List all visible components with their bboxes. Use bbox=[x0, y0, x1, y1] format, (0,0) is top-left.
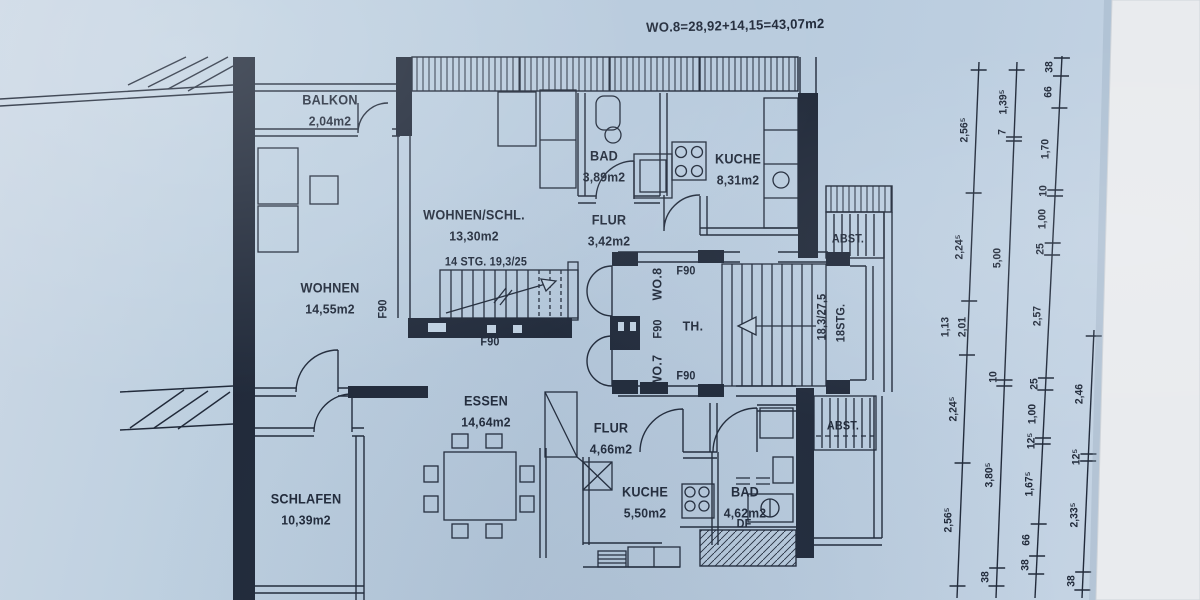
dimension-label: 38 bbox=[1045, 61, 1056, 73]
annotation-label: ABST. bbox=[832, 234, 864, 246]
dimension-label: 25 bbox=[1036, 243, 1047, 255]
room-label-area: 3,89m2 bbox=[583, 171, 626, 184]
room-label-name: FLUR bbox=[592, 213, 627, 227]
annotation-label: F90 bbox=[653, 319, 665, 338]
dimension-label: 2,33⁵ bbox=[1069, 503, 1080, 528]
dimension-label: 38 bbox=[980, 571, 991, 583]
room-label-area: 4,66m2 bbox=[590, 443, 633, 456]
dimension-label: 2,57 bbox=[1033, 306, 1044, 326]
dimension-label: 66 bbox=[1044, 86, 1055, 98]
dimension-label: 2,24⁵ bbox=[948, 397, 959, 422]
room-label-area: 2,04m2 bbox=[309, 115, 352, 128]
room-label-name: SCHLAFEN bbox=[271, 492, 342, 506]
annotation-label: 18,3/27,5 bbox=[817, 294, 829, 341]
dimension-label: 25 bbox=[1029, 378, 1040, 390]
room-label-name: BAD bbox=[590, 149, 618, 163]
room-label-area: 3,42m2 bbox=[588, 235, 631, 248]
dimension-label: 2,01 bbox=[958, 317, 969, 337]
dimension-label: 5,00 bbox=[993, 248, 1004, 268]
annotation-label: TH. bbox=[683, 320, 704, 333]
annotation-label: 18STG. bbox=[836, 304, 848, 342]
room-label-area: 10,39m2 bbox=[281, 514, 331, 527]
dimension-label: 2,46 bbox=[1075, 384, 1086, 404]
dimension-label: 10 bbox=[1039, 185, 1050, 197]
dimension-label: 7 bbox=[998, 129, 1009, 135]
room-label-name: BALKON bbox=[302, 93, 357, 107]
room-label-name: KUCHE bbox=[715, 152, 761, 166]
room-label-area: 5,50m2 bbox=[624, 507, 667, 520]
plan-labels-layer: BALKON2,04m2WOHNEN/SCHL.13,30m2BAD3,89m2… bbox=[0, 0, 1200, 600]
dimension-label: 10 bbox=[988, 371, 999, 383]
room-label-name: FLUR bbox=[594, 421, 629, 435]
annotation-label: WO.7 bbox=[651, 355, 664, 388]
dimension-label: 2,56⁵ bbox=[960, 118, 971, 143]
annotation-label: 14 STG. 19,3/25 bbox=[445, 257, 527, 269]
room-label-area: 14,55m2 bbox=[305, 303, 355, 316]
room-label-area: 13,30m2 bbox=[449, 230, 499, 243]
dimension-label: 2,24⁵ bbox=[955, 235, 966, 260]
room-label-area: 14,64m2 bbox=[461, 416, 511, 429]
dimension-label: 2,56⁵ bbox=[944, 508, 955, 533]
annotation-label: F90 bbox=[480, 337, 499, 349]
dimension-label: 1,39⁵ bbox=[999, 90, 1010, 115]
annotation-label: ABST. bbox=[827, 421, 859, 433]
room-label-name: BAD bbox=[731, 485, 759, 499]
room-label-name: ESSEN bbox=[464, 394, 508, 408]
annotation-label: F90 bbox=[378, 299, 390, 318]
dimension-label: 38 bbox=[1020, 559, 1031, 571]
dimension-label: 1,70 bbox=[1041, 139, 1052, 159]
floor-plan-blueprint: BALKON2,04m2WOHNEN/SCHL.13,30m2BAD3,89m2… bbox=[0, 0, 1200, 600]
dimension-label: 3,80⁵ bbox=[984, 463, 995, 488]
dimension-label: 1,00 bbox=[1028, 404, 1039, 424]
room-label-name: WOHNEN bbox=[301, 281, 360, 295]
room-label-area: 8,31m2 bbox=[717, 174, 760, 187]
dimension-label: 38 bbox=[1066, 575, 1077, 587]
annotation-label: F90 bbox=[676, 371, 695, 383]
annotation-label: F90 bbox=[676, 266, 695, 278]
dimension-label: 12⁵ bbox=[1072, 449, 1083, 465]
room-label-name: KUCHE bbox=[622, 485, 668, 499]
annotation-label: DF bbox=[737, 519, 752, 531]
annotation-label: WO.8 bbox=[651, 268, 664, 301]
dimension-label: 66 bbox=[1021, 534, 1032, 546]
dimension-label: 1,67⁵ bbox=[1024, 472, 1035, 497]
dimension-label: 1,00 bbox=[1037, 209, 1048, 229]
room-label-name: WOHNEN/SCHL. bbox=[423, 208, 525, 222]
dimension-label: 12⁵ bbox=[1026, 433, 1037, 449]
dimension-label: 1,13 bbox=[941, 317, 952, 337]
